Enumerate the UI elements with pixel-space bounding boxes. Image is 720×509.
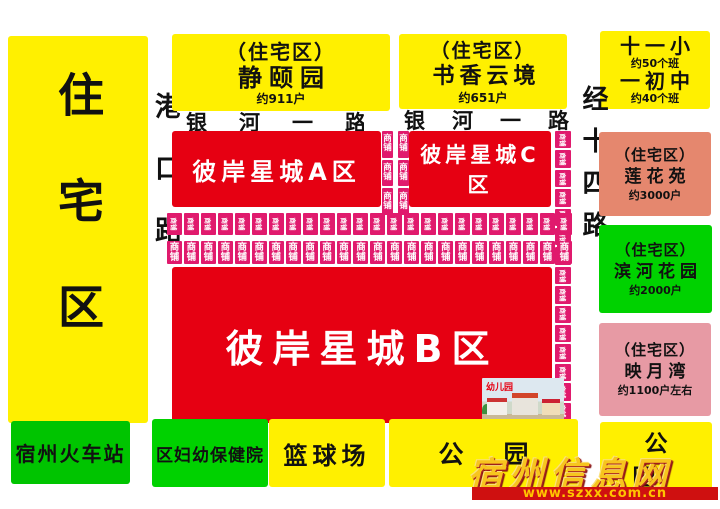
- shop-cell: 商铺: [455, 213, 470, 235]
- shop-cell: 商铺: [353, 241, 368, 264]
- shop-cell: 商铺: [387, 213, 402, 235]
- shop-cell: 商铺: [218, 213, 233, 235]
- block-residential-left-label: 住宅区: [45, 71, 111, 389]
- shop-cell: 商铺: [438, 241, 453, 264]
- maternity-hospital-label: 区妇幼保健院: [156, 441, 264, 466]
- jingyiyuan-line1: （住宅区）: [226, 40, 336, 64]
- lianhuayuan-name: 莲花苑: [620, 165, 691, 189]
- block-binhe: （住宅区） 滨河花园 约2000户: [599, 225, 712, 313]
- shop-cell: 商铺: [320, 213, 335, 235]
- shop-cell: 商铺: [557, 213, 572, 235]
- shop-cell: 商铺: [252, 241, 267, 264]
- block-zone-a: 彼岸星城A区: [172, 131, 381, 207]
- shop-cell: 商铺: [555, 344, 571, 361]
- shop-cell: 商铺: [398, 131, 409, 158]
- shop-cell: 商铺: [201, 241, 216, 264]
- block-jingyiyuan: （住宅区） 静颐园 约911户: [172, 34, 390, 111]
- binhe-line1: （住宅区）: [615, 241, 695, 260]
- shop-cell: 商铺: [382, 160, 393, 187]
- kindergarten-building: [512, 393, 538, 415]
- shop-column-right: 商铺商铺商铺商铺商铺商铺商铺商铺商铺商铺商铺商铺商铺商铺商铺: [555, 131, 571, 420]
- shop-cell: 商铺: [523, 213, 538, 235]
- shop-cell: 商铺: [489, 213, 504, 235]
- zone-c-label: 彼岸星城C区: [409, 139, 551, 199]
- shop-cell: 商铺: [269, 213, 284, 235]
- shop-cell: 商铺: [472, 213, 487, 235]
- zone-b-label: 彼岸星城B区: [226, 318, 499, 373]
- shop-cell: 商铺: [303, 213, 318, 235]
- shop-cell: 商铺: [337, 241, 352, 264]
- shop-cell: 商铺: [555, 325, 571, 342]
- shop-cell: 商铺: [382, 131, 393, 158]
- yingyuewan-name: 映月湾: [620, 360, 691, 384]
- shop-cell: 商铺: [218, 241, 233, 264]
- kindergarten-building: [487, 398, 507, 415]
- shop-cell: 商铺: [353, 213, 368, 235]
- yingyuewan-households: 约1100户左右: [618, 384, 693, 398]
- block-lianhuayuan: （住宅区） 莲花苑 约3000户: [599, 132, 711, 216]
- shop-cell: 商铺: [235, 213, 250, 235]
- shop-cell: 商铺: [421, 241, 436, 264]
- shop-cell: 商铺: [398, 188, 409, 215]
- block-train-station: 宿州火车站: [11, 421, 130, 484]
- kindergarten-photo: 幼儿园: [482, 378, 564, 421]
- shop-cell: 商铺: [404, 241, 419, 264]
- lianhuayuan-households: 约3000户: [629, 189, 682, 203]
- shuxiang-households: 约651户: [458, 91, 507, 105]
- shop-cell: 商铺: [286, 241, 301, 264]
- block-residential-left: 住宅区: [8, 36, 148, 423]
- binhe-name: 滨河花园: [609, 260, 702, 284]
- shop-cell: 商铺: [506, 213, 521, 235]
- shop-cell: 商铺: [167, 241, 182, 264]
- shuxiang-line1: （住宅区）: [430, 39, 535, 63]
- shop-cell: 商铺: [404, 213, 419, 235]
- shop-cell: 商铺: [555, 131, 571, 148]
- shop-cell: 商铺: [184, 241, 199, 264]
- shop-strip-left: 商铺商铺商铺: [382, 131, 393, 215]
- shop-cell: 商铺: [555, 189, 571, 206]
- shop-cell: 商铺: [557, 241, 572, 264]
- shop-cell: 商铺: [438, 213, 453, 235]
- watermark-url: www.szxx.com.cn: [472, 487, 718, 500]
- shop-cell: 商铺: [506, 241, 521, 264]
- zone-a-label: 彼岸星城A区: [192, 152, 361, 187]
- shop-cell: 商铺: [235, 241, 250, 264]
- shop-cell: 商铺: [555, 286, 571, 303]
- shop-cell: 商铺: [555, 267, 571, 284]
- shop-cell: 商铺: [370, 241, 385, 264]
- shop-cell: 商铺: [269, 241, 284, 264]
- shop-cell: 商铺: [370, 213, 385, 235]
- shuxiang-name: 书香云境: [425, 63, 540, 91]
- shop-cell: 商铺: [523, 241, 538, 264]
- block-shuxiang: （住宅区） 书香云境 约651户: [399, 34, 567, 109]
- shop-cell: 商铺: [472, 241, 487, 264]
- shop-cell: 商铺: [167, 213, 182, 235]
- shop-cell: 商铺: [555, 150, 571, 167]
- shop-row-bottom: 商铺商铺商铺商铺商铺商铺商铺商铺商铺商铺商铺商铺商铺商铺商铺商铺商铺商铺商铺商铺…: [167, 241, 572, 264]
- shop-cell: 商铺: [455, 241, 470, 264]
- shop-row-top: 商铺商铺商铺商铺商铺商铺商铺商铺商铺商铺商铺商铺商铺商铺商铺商铺商铺商铺商铺商铺…: [167, 213, 572, 235]
- jingyiyuan-name: 静颐园: [231, 64, 331, 92]
- shop-cell: 商铺: [555, 306, 571, 323]
- block-yingyuewan: （住宅区） 映月湾 约1100户左右: [599, 323, 711, 416]
- lianhuayuan-line1: （住宅区）: [615, 146, 695, 165]
- shop-cell: 商铺: [184, 213, 199, 235]
- block-basketball-court: 篮球场: [269, 419, 385, 487]
- shop-cell: 商铺: [303, 241, 318, 264]
- shop-cell: 商铺: [398, 160, 409, 187]
- shop-cell: 商铺: [286, 213, 301, 235]
- shop-cell: 商铺: [201, 213, 216, 235]
- shop-cell: 商铺: [555, 170, 571, 187]
- block-zone-c: 彼岸星城C区: [409, 131, 551, 207]
- train-station-label: 宿州火车站: [16, 438, 126, 467]
- jingyiyuan-households: 约911户: [256, 92, 305, 106]
- shop-cell: 商铺: [252, 213, 267, 235]
- shop-cell: 商铺: [540, 213, 555, 235]
- shop-cell: 商铺: [320, 241, 335, 264]
- yingyuewan-line1: （住宅区）: [615, 341, 695, 360]
- school-middle-classes: 约40个班: [631, 92, 679, 105]
- kindergarten-building: [542, 399, 560, 415]
- shop-cell: 商铺: [489, 241, 504, 264]
- shop-cell: 商铺: [337, 213, 352, 235]
- shop-cell: 商铺: [421, 213, 436, 235]
- block-maternity-hospital: 区妇幼保健院: [152, 419, 268, 487]
- binhe-households: 约2000户: [629, 284, 682, 298]
- map-canvas: 住宅区 港口路 （住宅区） 静颐园 约911户 （住宅区） 书香云境 约651户…: [0, 0, 720, 509]
- school-middle: 一初中: [615, 70, 695, 92]
- basketball-court-label: 篮球场: [284, 436, 371, 471]
- shop-cell: 商铺: [382, 188, 393, 215]
- block-school: 十一小 约50个班 一初中 约40个班: [600, 31, 710, 109]
- shop-cell: 商铺: [387, 241, 402, 264]
- shop-strip-right: 商铺商铺商铺: [398, 131, 409, 215]
- school-primary: 十一小: [615, 35, 695, 57]
- road-yinhe-right-label: 银河一路: [404, 109, 570, 133]
- shop-cell: 商铺: [540, 241, 555, 264]
- kindergarten-label: 幼儿园: [486, 380, 513, 393]
